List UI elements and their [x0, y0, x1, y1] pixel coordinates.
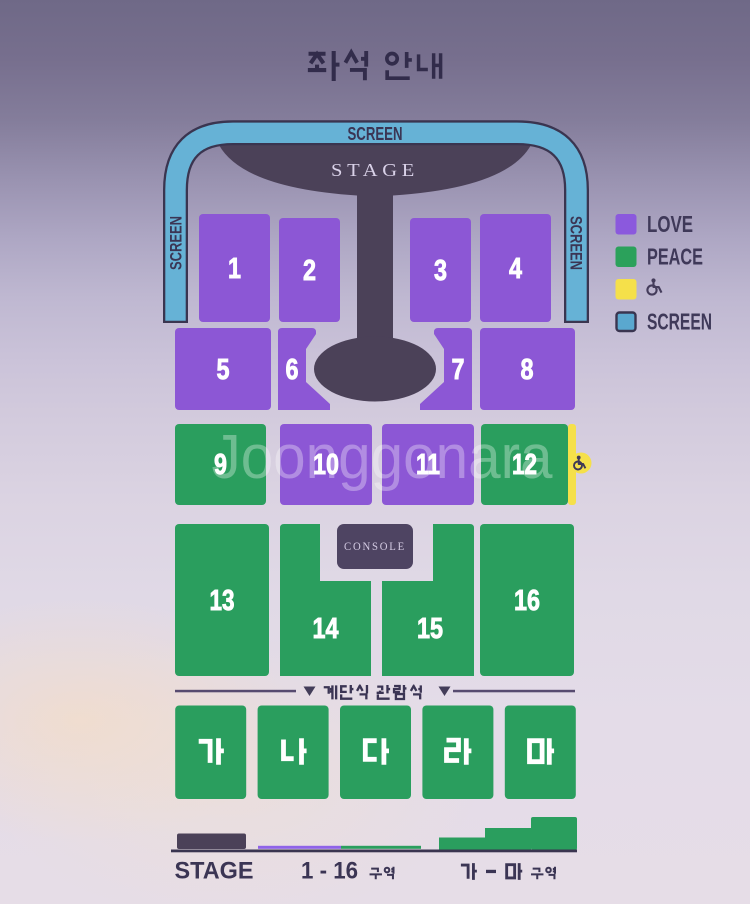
- svg-text:3: 3: [434, 255, 447, 287]
- svg-text:STAGE: STAGE: [175, 858, 254, 885]
- svg-text:15: 15: [417, 613, 443, 645]
- svg-text:2: 2: [303, 255, 316, 287]
- svg-text:Joonggonara: Joonggonara: [212, 423, 553, 492]
- svg-text:STAGE: STAGE: [331, 160, 419, 180]
- svg-text:SCREEN: SCREEN: [567, 216, 586, 270]
- svg-text:SCREEN: SCREEN: [167, 216, 186, 270]
- svg-text:13: 13: [210, 585, 235, 617]
- svg-text:CONSOLE: CONSOLE: [344, 539, 406, 553]
- svg-text:6: 6: [286, 354, 299, 386]
- svg-text:PEACE: PEACE: [647, 244, 703, 270]
- svg-text:8: 8: [521, 354, 534, 386]
- svg-text:SCREEN: SCREEN: [348, 123, 403, 144]
- svg-text:7: 7: [452, 354, 465, 386]
- svg-text:5: 5: [217, 354, 230, 386]
- svg-text:4: 4: [509, 253, 522, 285]
- svg-text:14: 14: [313, 613, 339, 645]
- svg-text:SCREEN: SCREEN: [647, 309, 712, 335]
- svg-text:16: 16: [514, 585, 540, 617]
- svg-text:1 - 16: 1 - 16: [301, 858, 358, 885]
- svg-text:1: 1: [228, 253, 241, 285]
- svg-text:LOVE: LOVE: [647, 211, 693, 237]
